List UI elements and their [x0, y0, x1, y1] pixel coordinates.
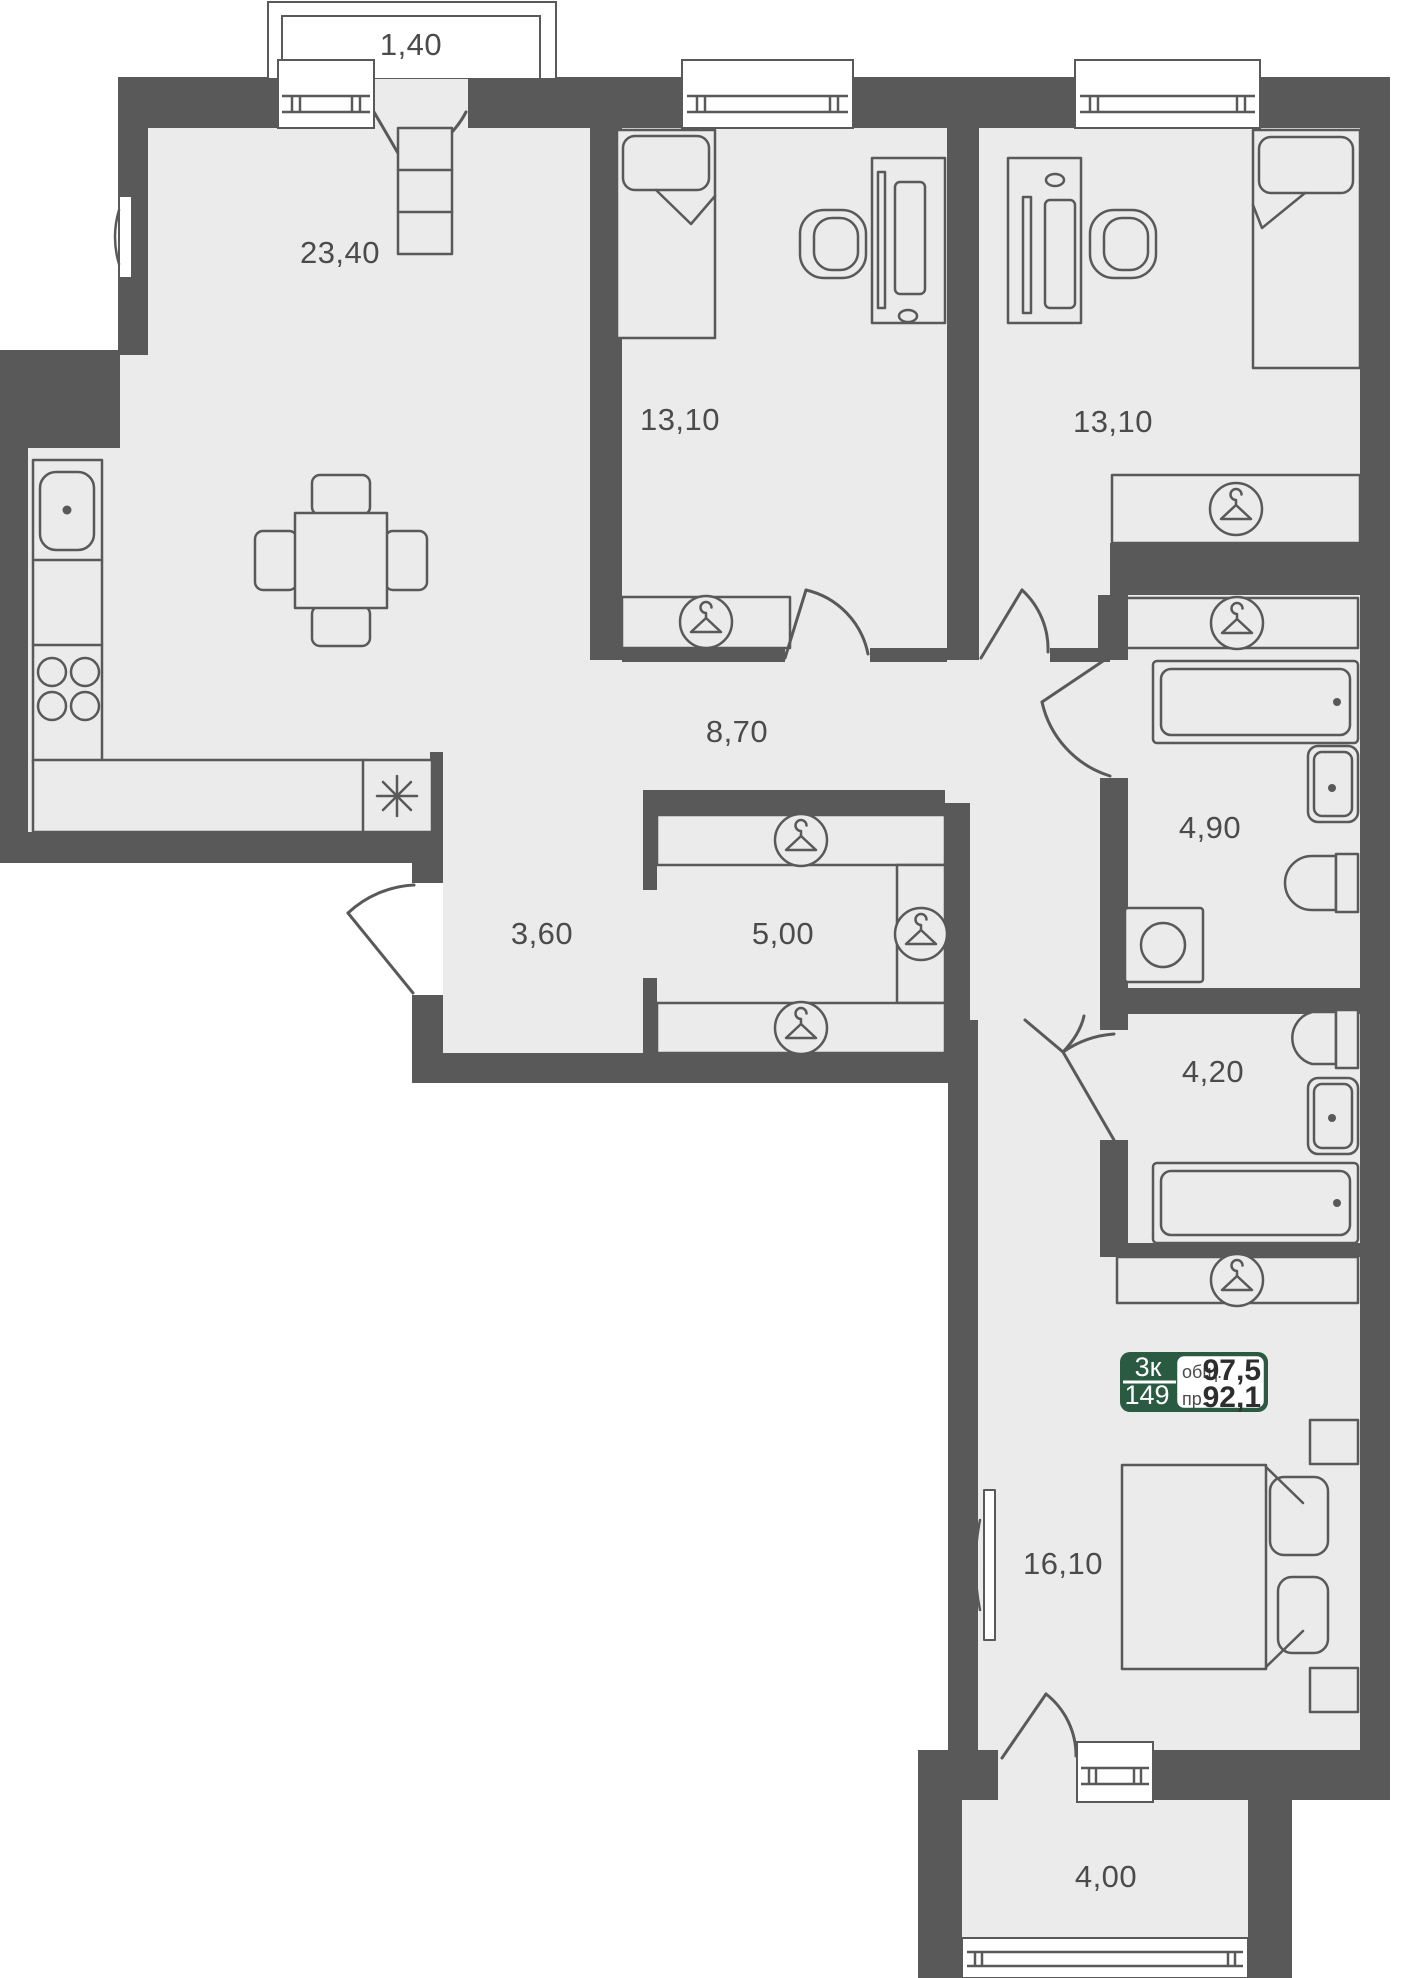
nightstand-2	[1310, 1668, 1358, 1712]
sink-2	[1308, 1078, 1358, 1154]
room-label-bathroom-1: 4,90	[1179, 810, 1241, 845]
hanger-icon	[1211, 597, 1263, 649]
room-label-bedroom-1: 13,10	[640, 402, 720, 437]
desk-1	[872, 158, 945, 323]
hanger-icon	[775, 814, 827, 866]
hanger-icon	[895, 908, 947, 960]
room-label-balcony-top: 1,40	[380, 27, 442, 62]
hanger-icon	[680, 596, 732, 648]
window-bedroom-2	[1075, 60, 1260, 128]
corridor-floor	[955, 640, 1120, 1200]
room-label-bedroom-3: 16,10	[1023, 1546, 1103, 1581]
badge-reduced-value: 92,1	[1203, 1381, 1261, 1414]
room-label-balcony-bottom: 4,00	[1075, 1859, 1137, 1894]
chair-1	[800, 210, 866, 278]
floor-plan-canvas: 1,40 23,40 13,10 13,10 8,70 3,60 5,00 4,…	[0, 0, 1410, 1978]
hanger-icon	[775, 1002, 827, 1054]
window-bedroom-3	[1077, 1742, 1153, 1802]
hanger-icon	[1211, 1254, 1263, 1306]
toilet-1	[1285, 854, 1358, 912]
toilet-2	[1292, 1010, 1358, 1068]
badge-unit-number: 149	[1124, 1380, 1169, 1410]
bed-single-1	[617, 130, 715, 338]
kitchen-sink	[40, 472, 94, 550]
door-entrance	[348, 883, 443, 995]
chair-2	[1090, 210, 1156, 278]
badge-rooms-count: 3к	[1135, 1352, 1162, 1382]
room-label-wardrobe: 5,00	[752, 916, 814, 951]
desk-2	[1008, 158, 1081, 323]
room-label-hall: 3,60	[511, 916, 573, 951]
window-living	[278, 60, 374, 128]
washing-machine	[1125, 908, 1203, 982]
bathtub-2	[1153, 1163, 1358, 1243]
hanger-icon	[1210, 483, 1262, 535]
unit-badge: 3к 149 общ. 97,5 пр. 92,1	[1120, 1352, 1268, 1414]
nightstand-1	[1310, 1420, 1358, 1464]
bathtub-1	[1153, 661, 1358, 743]
bed-single-2	[1253, 130, 1360, 368]
radiator	[115, 196, 132, 278]
room-label-bedroom-2: 13,10	[1073, 404, 1153, 439]
room-label-bathroom-2: 4,20	[1182, 1054, 1244, 1089]
floor-plan: 1,40 23,40 13,10 13,10 8,70 3,60 5,00 4,…	[0, 0, 1410, 1978]
shelf-unit	[398, 128, 452, 254]
window-bedroom-1	[682, 60, 853, 128]
fridge-asterisk-icon	[377, 776, 417, 816]
room-label-hallway: 8,70	[706, 714, 768, 749]
sink-1	[1308, 746, 1358, 822]
room-label-living: 23,40	[300, 235, 380, 270]
balcony-bottom-glazing	[962, 1938, 1248, 1978]
